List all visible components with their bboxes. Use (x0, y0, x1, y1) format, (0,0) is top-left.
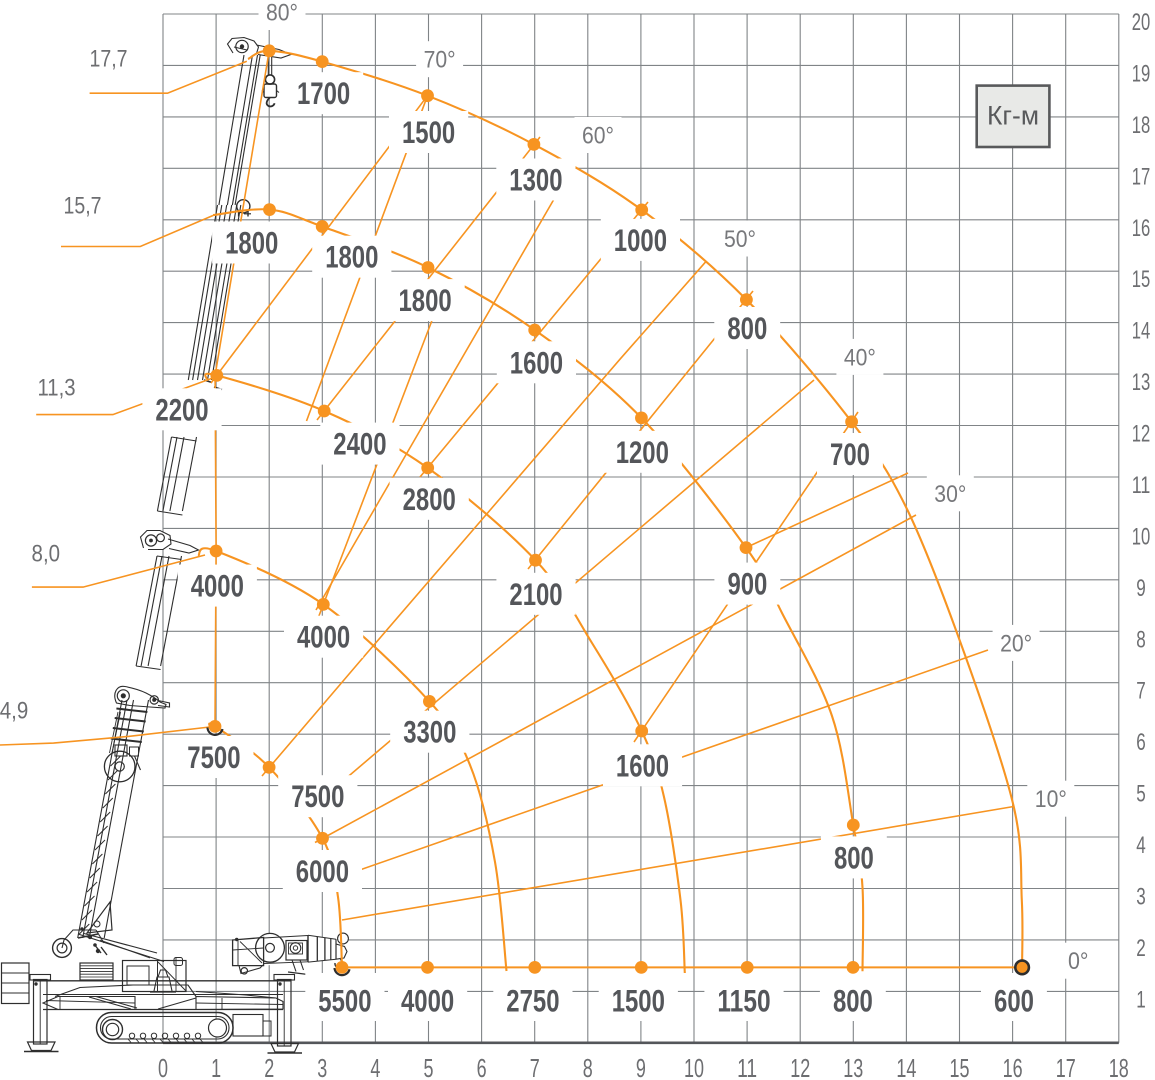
svg-text:3: 3 (1136, 884, 1146, 911)
svg-text:5500: 5500 (318, 983, 371, 1019)
svg-text:13: 13 (843, 1053, 863, 1080)
svg-text:1800: 1800 (399, 282, 452, 318)
svg-text:2100: 2100 (509, 576, 562, 612)
svg-text:50°: 50° (724, 226, 756, 253)
svg-text:1300: 1300 (509, 162, 562, 198)
svg-text:60°: 60° (582, 123, 614, 150)
svg-text:18: 18 (1109, 1053, 1129, 1080)
svg-text:1150: 1150 (717, 983, 770, 1019)
svg-text:16: 16 (1003, 1053, 1023, 1080)
svg-text:20: 20 (1132, 9, 1151, 36)
svg-text:80°: 80° (266, 0, 298, 27)
svg-text:8: 8 (583, 1053, 593, 1080)
svg-text:7500: 7500 (187, 739, 240, 775)
svg-text:9: 9 (636, 1053, 646, 1080)
svg-text:1: 1 (211, 1053, 221, 1080)
svg-text:40°: 40° (844, 344, 876, 371)
svg-text:5: 5 (424, 1053, 434, 1080)
svg-text:14: 14 (896, 1053, 916, 1080)
svg-text:17: 17 (1132, 163, 1151, 190)
svg-text:800: 800 (727, 310, 767, 346)
svg-text:12: 12 (790, 1053, 810, 1080)
svg-text:10°: 10° (1035, 786, 1067, 813)
svg-text:4000: 4000 (191, 568, 244, 604)
svg-text:4000: 4000 (401, 983, 454, 1019)
svg-text:17,7: 17,7 (90, 46, 128, 73)
svg-text:18: 18 (1132, 112, 1151, 139)
svg-text:4,9: 4,9 (0, 698, 28, 725)
svg-text:10: 10 (1132, 523, 1151, 550)
svg-text:1000: 1000 (614, 222, 667, 258)
svg-text:13: 13 (1132, 369, 1151, 396)
svg-text:15,7: 15,7 (64, 192, 102, 219)
svg-text:7: 7 (1136, 678, 1146, 705)
svg-text:700: 700 (830, 436, 870, 472)
svg-text:15: 15 (1132, 266, 1151, 293)
svg-text:1800: 1800 (225, 225, 278, 261)
svg-text:5: 5 (1136, 781, 1146, 808)
svg-text:20°: 20° (1000, 630, 1032, 657)
svg-text:Кг-м: Кг-м (987, 101, 1039, 131)
svg-text:11: 11 (1132, 472, 1151, 499)
svg-text:1600: 1600 (510, 344, 563, 380)
svg-text:1200: 1200 (616, 434, 669, 470)
svg-text:6: 6 (1136, 729, 1146, 756)
svg-text:6: 6 (477, 1053, 487, 1080)
svg-text:11,3: 11,3 (38, 375, 76, 402)
svg-text:14: 14 (1132, 318, 1151, 345)
svg-text:0: 0 (158, 1053, 168, 1080)
svg-text:6000: 6000 (296, 853, 349, 889)
svg-text:800: 800 (834, 839, 874, 875)
svg-text:19: 19 (1132, 60, 1151, 87)
svg-text:10: 10 (684, 1053, 704, 1080)
svg-text:8,0: 8,0 (32, 541, 61, 568)
svg-text:16: 16 (1132, 215, 1151, 242)
svg-text:3: 3 (317, 1053, 327, 1080)
svg-text:70°: 70° (424, 47, 456, 74)
svg-text:2: 2 (264, 1053, 274, 1080)
svg-text:4: 4 (1136, 832, 1146, 859)
svg-text:1700: 1700 (297, 75, 350, 111)
svg-text:1600: 1600 (616, 747, 669, 783)
svg-text:7: 7 (530, 1053, 540, 1080)
svg-text:17: 17 (1056, 1053, 1076, 1080)
svg-text:2400: 2400 (333, 426, 386, 462)
svg-text:30°: 30° (934, 481, 966, 508)
svg-text:4: 4 (370, 1053, 380, 1080)
svg-text:8: 8 (1136, 626, 1146, 653)
svg-text:800: 800 (833, 983, 873, 1019)
svg-text:12: 12 (1132, 421, 1151, 448)
svg-text:15: 15 (950, 1053, 970, 1080)
svg-text:2200: 2200 (155, 391, 208, 427)
svg-text:4000: 4000 (297, 619, 350, 655)
svg-text:7500: 7500 (291, 778, 344, 814)
svg-text:900: 900 (727, 566, 767, 602)
svg-text:0°: 0° (1068, 948, 1089, 975)
svg-text:3300: 3300 (403, 714, 456, 750)
svg-text:2800: 2800 (403, 481, 456, 517)
svg-text:600: 600 (994, 983, 1034, 1019)
svg-text:1: 1 (1136, 986, 1146, 1013)
svg-text:1800: 1800 (325, 239, 378, 275)
svg-text:9: 9 (1136, 575, 1146, 602)
svg-text:1500: 1500 (402, 114, 455, 150)
svg-text:2: 2 (1136, 935, 1146, 962)
svg-text:1500: 1500 (612, 983, 665, 1019)
svg-text:2750: 2750 (506, 983, 559, 1019)
svg-text:11: 11 (737, 1053, 757, 1080)
